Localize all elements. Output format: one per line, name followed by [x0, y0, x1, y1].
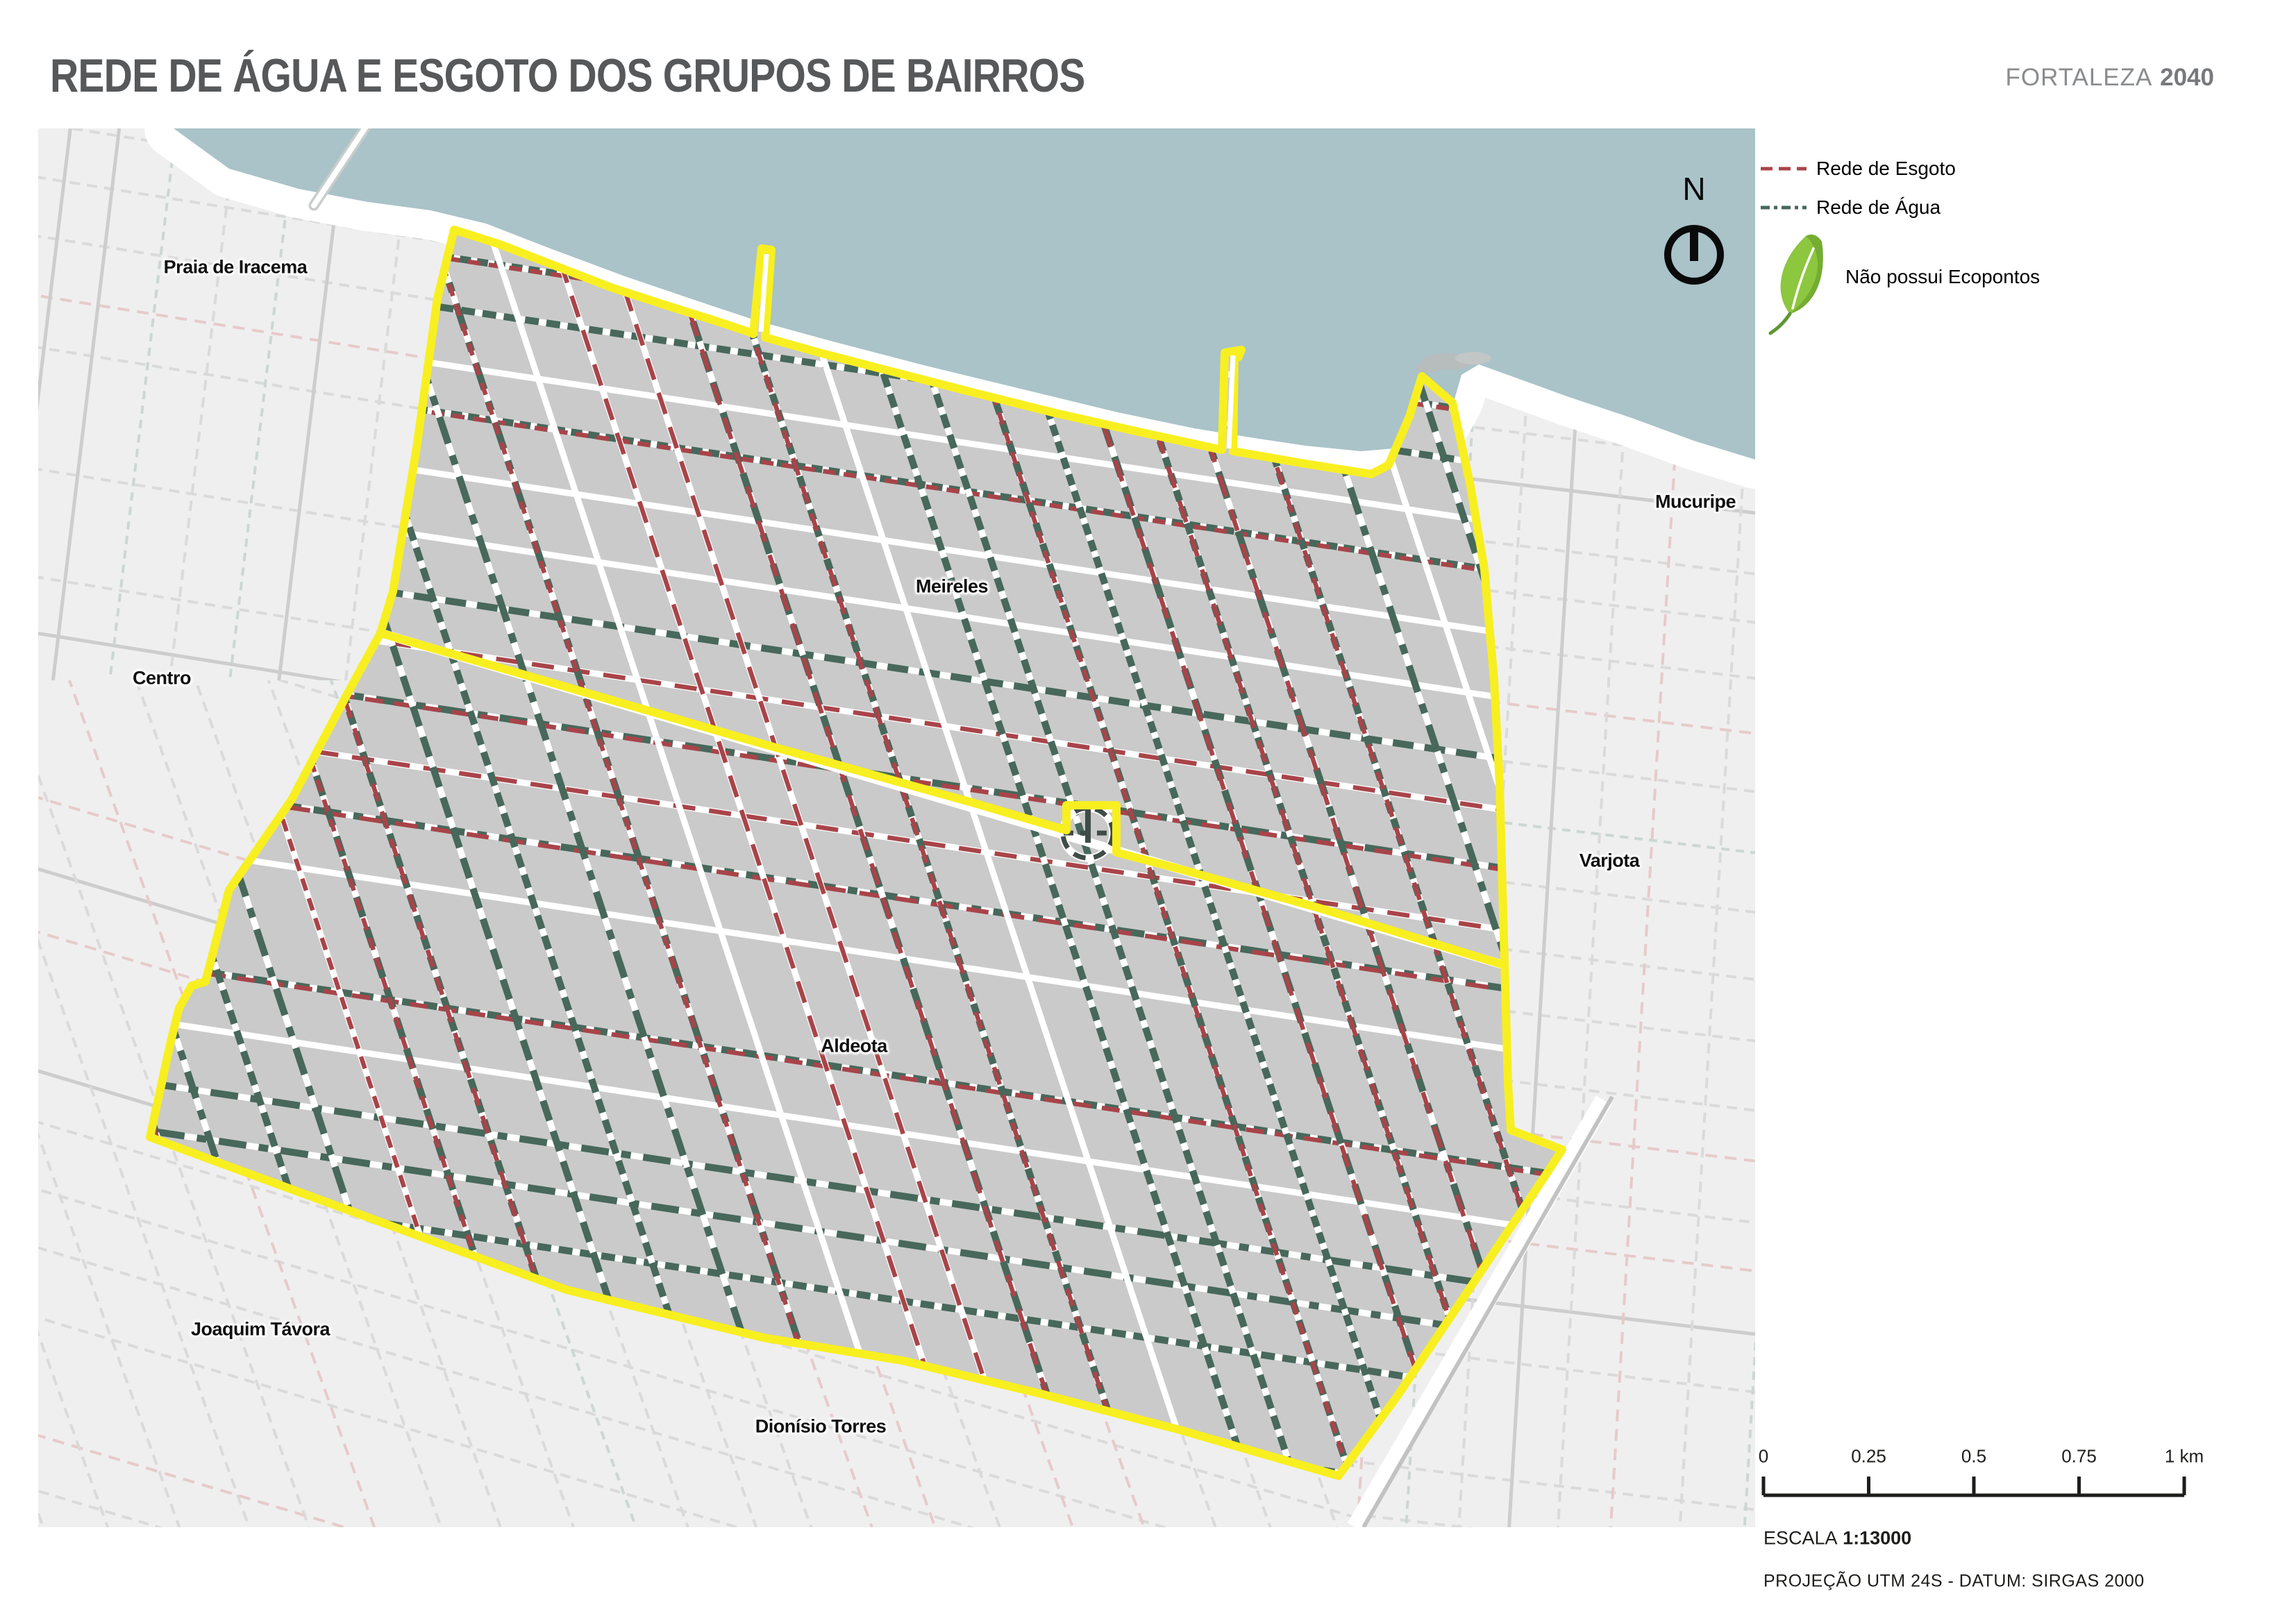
scale-tick-label: 0.25 [1851, 1446, 1886, 1468]
region-label: Praia de Iracema [164, 257, 308, 278]
region-label: Joaquim Távora [191, 1319, 330, 1340]
legend-label-ecopontos: Não possui Ecopontos [1845, 266, 2040, 288]
scale-caption: ESCALA 1:13000 [1763, 1528, 1911, 1549]
region-label: Meireles [916, 576, 988, 598]
compass-north-label: N [1682, 170, 1705, 208]
map-canvas [0, 0, 2296, 1623]
scale-tick-label: 0.5 [1961, 1446, 1986, 1468]
legend-label-esgoto: Rede de Esgoto [1816, 158, 1956, 180]
region-label: Aldeota [821, 1036, 887, 1057]
scale-bar [1763, 1477, 2184, 1495]
leaf-icon [1770, 235, 1823, 333]
scale-tick-label: 0.75 [2061, 1446, 2097, 1468]
scale-tick-label: 1 km [2165, 1446, 2204, 1468]
legend-swatches [1761, 169, 1823, 333]
region-label: Dionísio Torres [755, 1416, 887, 1438]
map-poster-page: REDE DE ÁGUA E ESGOTO DOS GRUPOS DE BAIR… [0, 0, 2296, 1623]
scale-ratio: 1:13000 [1843, 1528, 1911, 1549]
projection-caption: PROJEÇÃO UTM 24S - DATUM: SIRGAS 2000 [1763, 1572, 2145, 1592]
legend-label-agua: Rede de Água [1816, 196, 1941, 219]
region-label: Mucuripe [1655, 491, 1736, 513]
scale-tick-label: 0 [1759, 1446, 1768, 1468]
region-label: Varjota [1579, 850, 1640, 872]
region-label: Centro [133, 668, 191, 689]
